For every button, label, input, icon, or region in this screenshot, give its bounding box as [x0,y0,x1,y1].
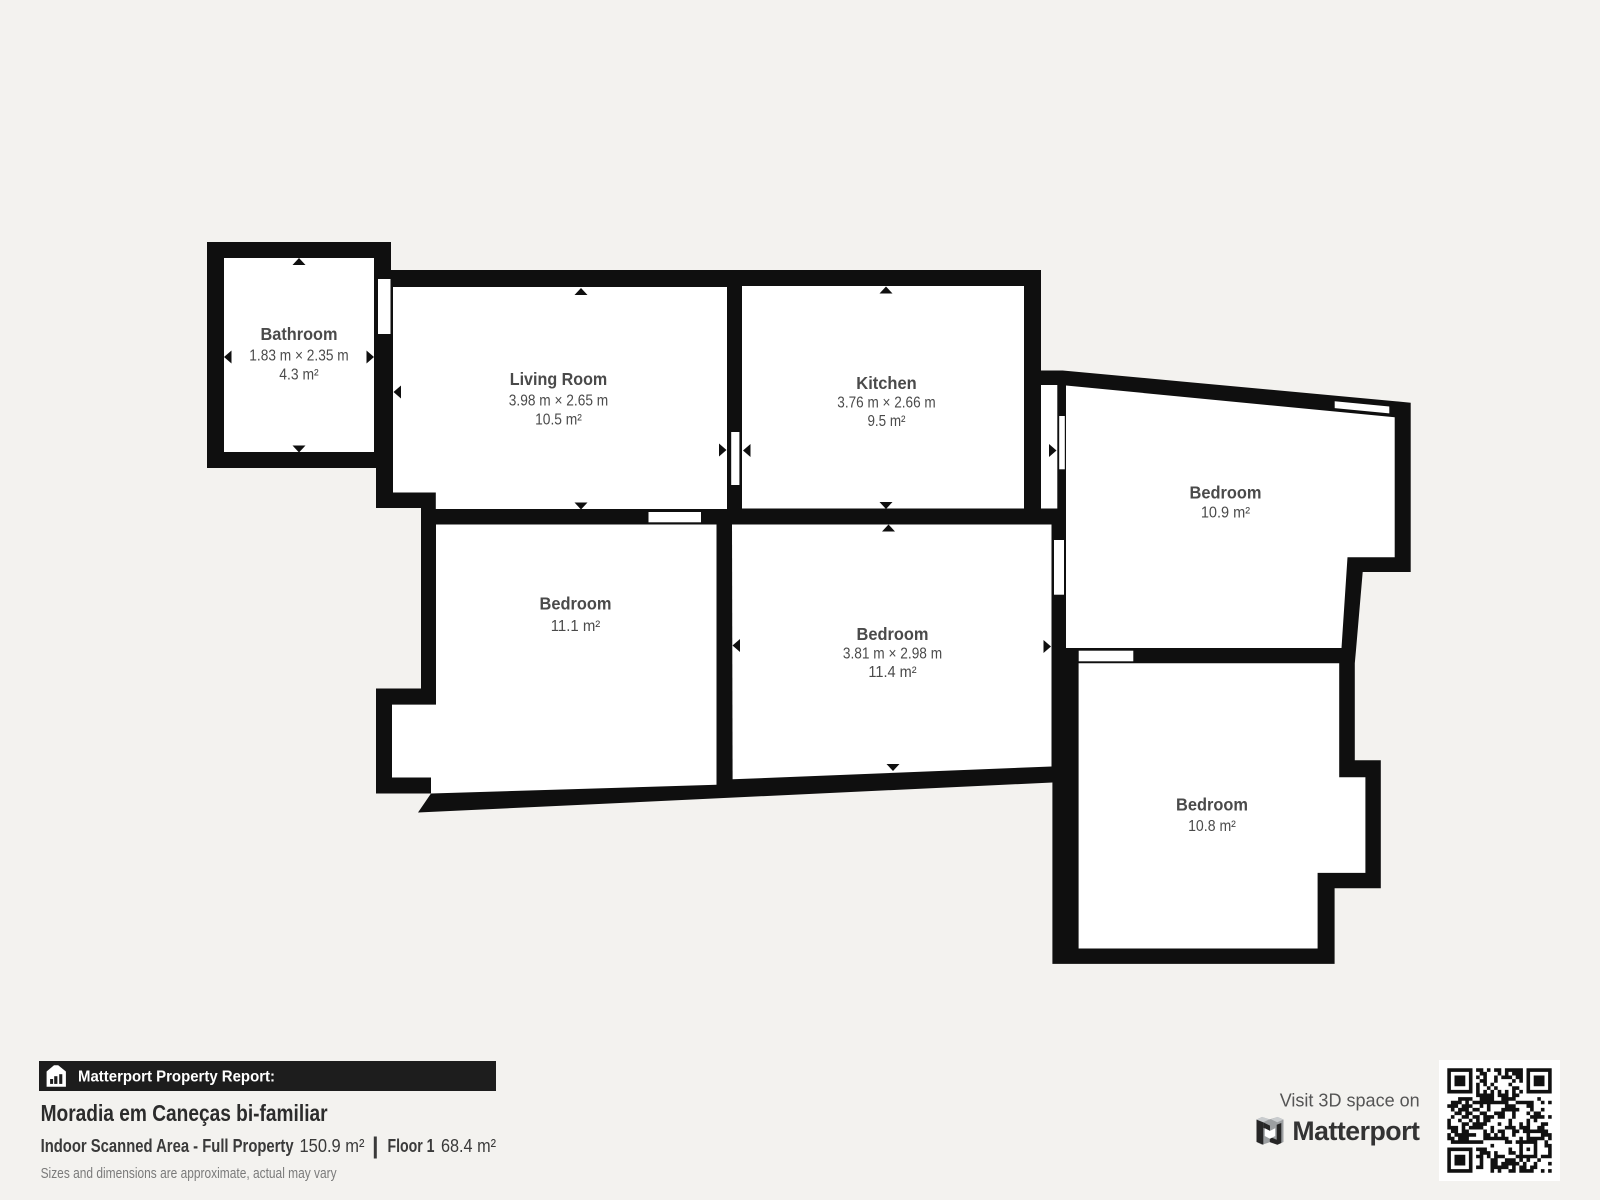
svg-text:10.5 m²: 10.5 m² [535,412,582,429]
svg-text:Living Room: Living Room [510,369,608,389]
svg-text:10.9 m²: 10.9 m² [1201,505,1250,522]
svg-text:Moradia em Caneças bi-familiar: Moradia em Caneças bi-familiar [41,1100,328,1126]
svg-text:Bedroom: Bedroom [1190,483,1262,503]
svg-text:Matterport Property Report:: Matterport Property Report: [78,1069,275,1086]
svg-text:Bedroom: Bedroom [540,594,612,614]
svg-text:3.76 m × 2.66 m: 3.76 m × 2.66 m [837,395,935,412]
svg-text:10.8 m²: 10.8 m² [1188,818,1236,835]
svg-text:3.81 m × 2.98 m: 3.81 m × 2.98 m [843,646,942,663]
svg-text:150.9 m²: 150.9 m² [300,1135,365,1156]
svg-text:Bedroom: Bedroom [1176,795,1248,815]
svg-text:Matterport: Matterport [1292,1116,1419,1146]
svg-text:11.4 m²: 11.4 m² [868,664,916,681]
svg-text:68.4 m²: 68.4 m² [441,1135,496,1156]
svg-text:Visit 3D space on: Visit 3D space on [1280,1090,1420,1111]
svg-text:Indoor Scanned Area - Full Pro: Indoor Scanned Area - Full Property [41,1135,295,1156]
svg-text:9.5 m²: 9.5 m² [867,413,905,430]
svg-text:Floor 1: Floor 1 [388,1135,435,1156]
svg-text:4.3 m²: 4.3 m² [279,367,318,384]
svg-text:3.98 m × 2.65 m: 3.98 m × 2.65 m [509,393,608,410]
svg-text:1.83 m × 2.35 m: 1.83 m × 2.35 m [249,348,348,365]
svg-text:11.1 m²: 11.1 m² [551,618,601,635]
svg-text:Sizes and dimensions are appro: Sizes and dimensions are approximate, ac… [41,1166,338,1182]
svg-text:Bedroom: Bedroom [857,624,929,644]
svg-text:Bathroom: Bathroom [261,324,338,344]
svg-text:Kitchen: Kitchen [856,373,916,393]
